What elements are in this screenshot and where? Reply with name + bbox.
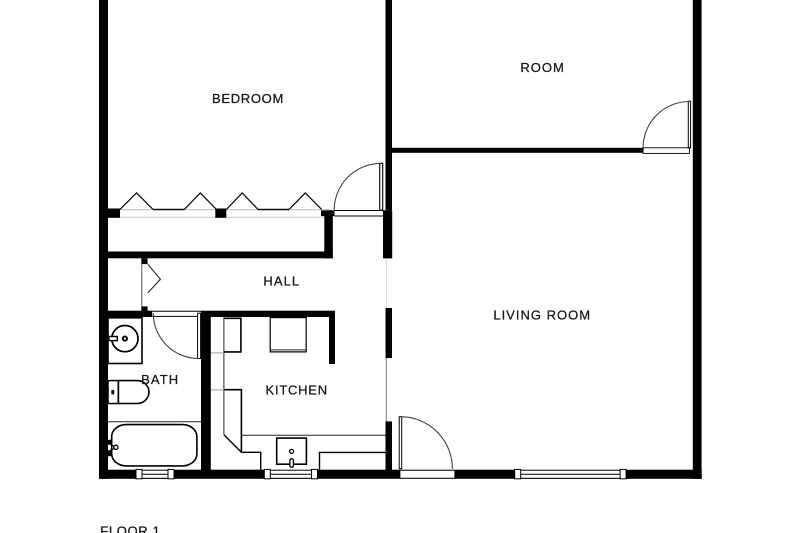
- svg-text:KITCHEN: KITCHEN: [266, 382, 328, 397]
- svg-text:BEDROOM: BEDROOM: [212, 91, 284, 106]
- svg-text:FLOOR 1: FLOOR 1: [100, 523, 160, 533]
- svg-text:LIVING ROOM: LIVING ROOM: [493, 307, 591, 322]
- svg-text:HALL: HALL: [263, 274, 300, 289]
- svg-text:BATH: BATH: [141, 372, 179, 387]
- svg-text:ROOM: ROOM: [520, 60, 564, 75]
